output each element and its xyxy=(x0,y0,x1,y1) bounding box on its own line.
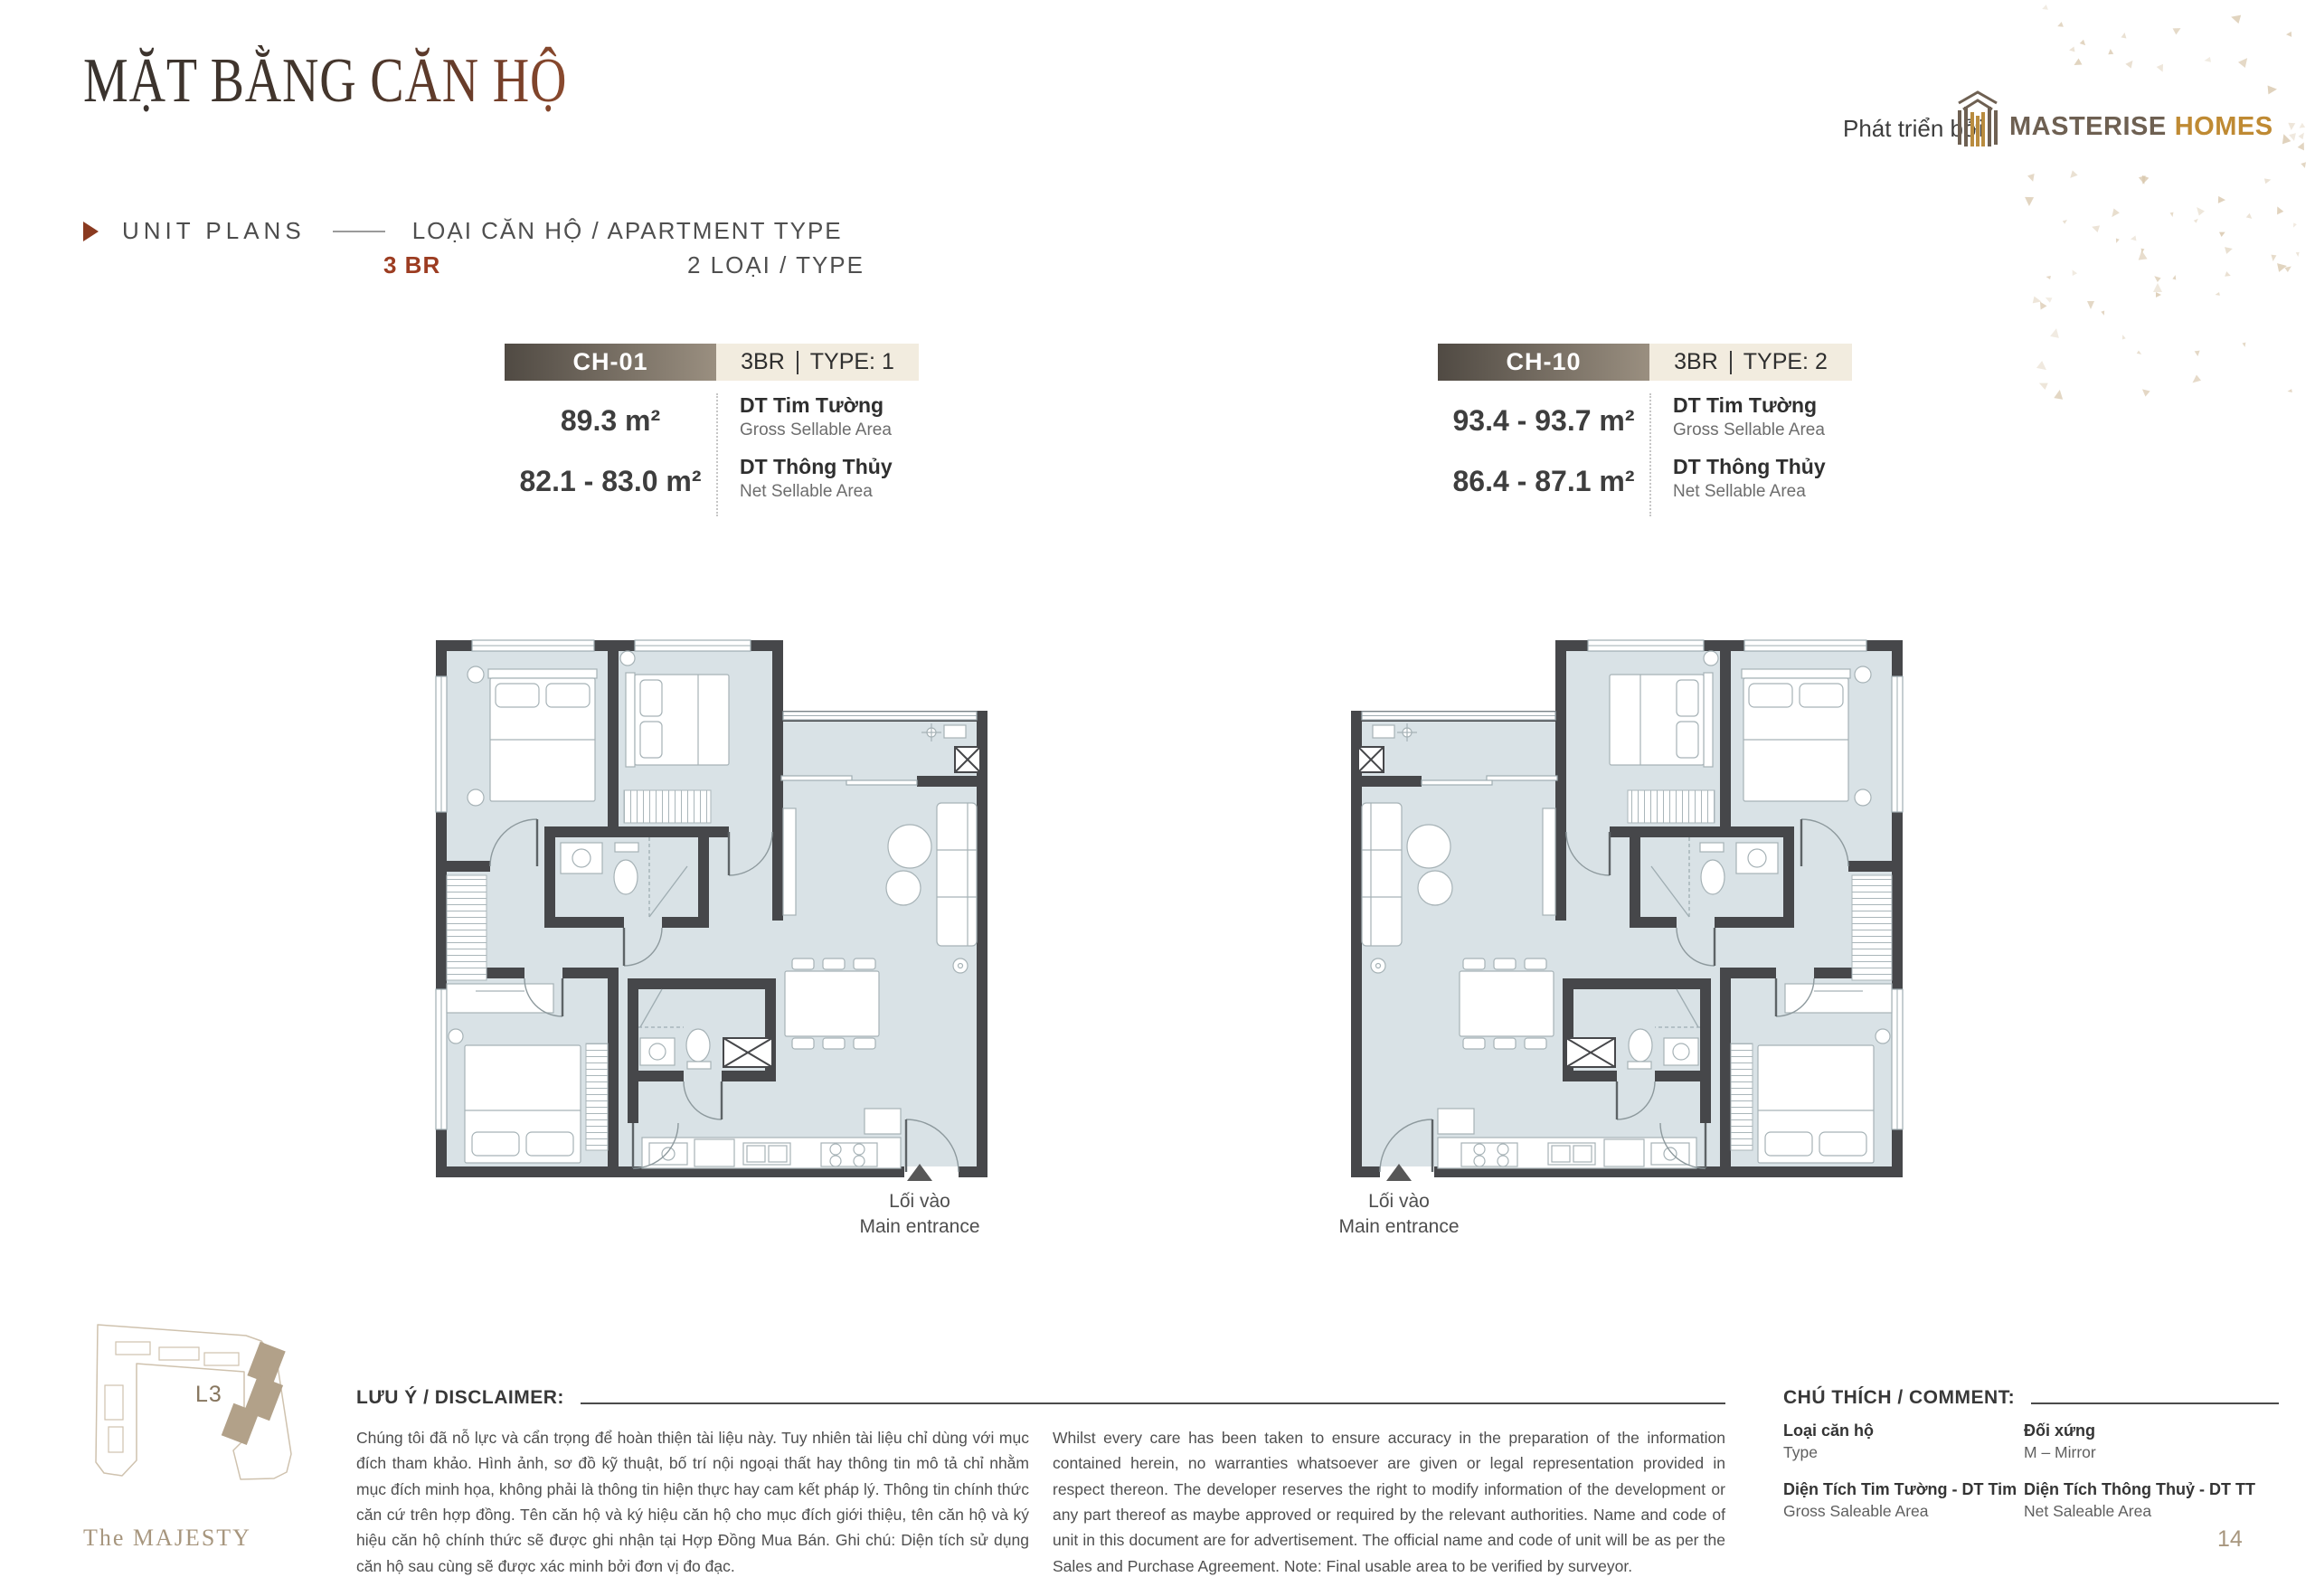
net-area-value: 82.1 - 83.0 m² xyxy=(505,465,716,498)
apartment-type-heading: LOẠI CĂN HỘ / APARTMENT TYPE xyxy=(412,217,843,245)
disclaimer-block: LƯU Ý / DISCLAIMER: Chúng tôi đã nỗ lực … xyxy=(356,1387,1725,1579)
legend-item: Diện Tích Thông Thuỷ - DT TT Net Saleabl… xyxy=(2024,1480,2279,1521)
entrance-label-en: Main entrance xyxy=(856,1214,983,1240)
brand-wordmark: MASTERISEHOMES xyxy=(2009,112,2273,142)
entrance-marker-ch01: Lối vào Main entrance xyxy=(856,1164,983,1241)
disclaimer-rule xyxy=(581,1402,1725,1404)
unit-type-label: TYPE: 1 xyxy=(810,349,894,375)
legend-rule xyxy=(2031,1402,2279,1404)
unit-code-badge: CH-01 xyxy=(505,344,716,381)
legend-definition: Net Saleable Area xyxy=(2024,1502,2279,1521)
gross-area-label: DT Tim Tường xyxy=(740,393,893,418)
legend-term: Diện Tích Tim Tường - DT Tim xyxy=(1783,1480,2006,1499)
brand-name-primary: MASTERISE xyxy=(2009,112,2167,141)
project-name: The MAJESTY xyxy=(83,1525,251,1552)
bedroom-count-label: 3 BR xyxy=(383,251,440,279)
unit-type-badge: 3BR TYPE: 2 xyxy=(1649,344,1852,381)
bullet-triangle-icon xyxy=(83,222,99,241)
net-area-label: DT Thông Thủy xyxy=(740,455,893,479)
entrance-arrow-icon xyxy=(907,1164,932,1181)
disclaimer-text-vi: Chúng tôi đã nỗ lực và cẩn trọng để hoàn… xyxy=(356,1425,1029,1579)
page-title: MẶT BẰNG CĂN HỘ xyxy=(83,45,567,118)
type-divider xyxy=(797,351,798,374)
legend-term: Đối xứng xyxy=(2024,1421,2279,1440)
floor-plan-ch10 xyxy=(1333,629,1913,1183)
legend-definition: Type xyxy=(1783,1443,2006,1462)
gross-area-value: 93.4 - 93.7 m² xyxy=(1438,404,1649,438)
net-area-label: DT Thông Thủy xyxy=(1673,455,1826,479)
area-labels: DT Tim Tường Gross Sellable Area DT Thôn… xyxy=(1651,393,1826,516)
unit-areas: 89.3 m² 82.1 - 83.0 m² DT Tim Tường Gros… xyxy=(505,393,919,516)
disclaimer-text-en: Whilst every care has been taken to ensu… xyxy=(1053,1425,1725,1579)
legend-heading: CHÚ THÍCH / COMMENT: xyxy=(1783,1387,2015,1409)
type-count-label: 2 LOẠI / TYPE xyxy=(687,251,865,279)
unit-br-label: 3BR xyxy=(1674,349,1718,375)
unit-areas: 93.4 - 93.7 m² 86.4 - 87.1 m² DT Tim Tườ… xyxy=(1438,393,1852,516)
net-area-sublabel: Net Sellable Area xyxy=(1673,482,1826,502)
gross-area-sublabel: Gross Sellable Area xyxy=(740,420,893,440)
net-area-sublabel: Net Sellable Area xyxy=(740,482,893,502)
level-badge: L3 xyxy=(195,1382,222,1407)
unit-code-badge: CH-10 xyxy=(1438,344,1649,381)
entrance-label-vi: Lối vào xyxy=(856,1189,983,1214)
unit-plans-label: UNIT PLANS xyxy=(122,217,306,245)
area-values: 89.3 m² 82.1 - 83.0 m² xyxy=(505,393,718,516)
unit-card-ch10: CH-10 3BR TYPE: 2 93.4 - 93.7 m² 86.4 - … xyxy=(1438,344,1852,516)
site-plan-locator: L3 xyxy=(54,1320,320,1506)
type-summary-row: 3 BR 2 LOẠI / TYPE xyxy=(383,251,865,279)
disclaimer-heading: LƯU Ý / DISCLAIMER: xyxy=(356,1387,564,1409)
type-divider xyxy=(1730,351,1732,374)
entrance-label-vi: Lối vào xyxy=(1336,1189,1462,1214)
floor-plan-ch01 xyxy=(425,629,1006,1183)
gross-area-value: 89.3 m² xyxy=(505,404,716,438)
net-area-value: 86.4 - 87.1 m² xyxy=(1438,465,1649,498)
legend-item: Diện Tích Tim Tường - DT Tim Gross Salea… xyxy=(1783,1480,2006,1521)
legend-term: Diện Tích Thông Thuỷ - DT TT xyxy=(2024,1480,2279,1499)
area-labels: DT Tim Tường Gross Sellable Area DT Thôn… xyxy=(718,393,893,516)
unit-type-label: TYPE: 2 xyxy=(1743,349,1828,375)
legend-item: Loại căn hộ Type xyxy=(1783,1421,2006,1462)
section-subtitle-row: UNIT PLANS LOẠI CĂN HỘ / APARTMENT TYPE xyxy=(83,217,843,245)
gross-area-label: DT Tim Tường xyxy=(1673,393,1826,418)
legend-item: Đối xứng M – Mirror xyxy=(2024,1421,2279,1462)
unit-header-bar: CH-10 3BR TYPE: 2 xyxy=(1438,344,1852,381)
entrance-label-en: Main entrance xyxy=(1336,1214,1462,1240)
page-number: 14 xyxy=(2217,1526,2243,1553)
masterise-logo-icon xyxy=(1955,90,2000,146)
brand-name-secondary: HOMES xyxy=(2175,112,2273,141)
unit-header-bar: CH-01 3BR TYPE: 1 xyxy=(505,344,919,381)
subtitle-divider xyxy=(333,231,385,232)
legend-block: CHÚ THÍCH / COMMENT: Loại căn hộ Type Đố… xyxy=(1783,1387,2279,1521)
legend-definition: Gross Saleable Area xyxy=(1783,1502,2006,1521)
area-values: 93.4 - 93.7 m² 86.4 - 87.1 m² xyxy=(1438,393,1651,516)
unit-br-label: 3BR xyxy=(741,349,785,375)
unit-card-ch01: CH-01 3BR TYPE: 1 89.3 m² 82.1 - 83.0 m²… xyxy=(505,344,919,516)
legend-term: Loại căn hộ xyxy=(1783,1421,2006,1440)
entrance-marker-ch10: Lối vào Main entrance xyxy=(1336,1164,1462,1241)
entrance-arrow-icon xyxy=(1386,1164,1412,1181)
legend-definition: M – Mirror xyxy=(2024,1443,2279,1462)
unit-type-badge: 3BR TYPE: 1 xyxy=(716,344,919,381)
gross-area-sublabel: Gross Sellable Area xyxy=(1673,420,1826,440)
